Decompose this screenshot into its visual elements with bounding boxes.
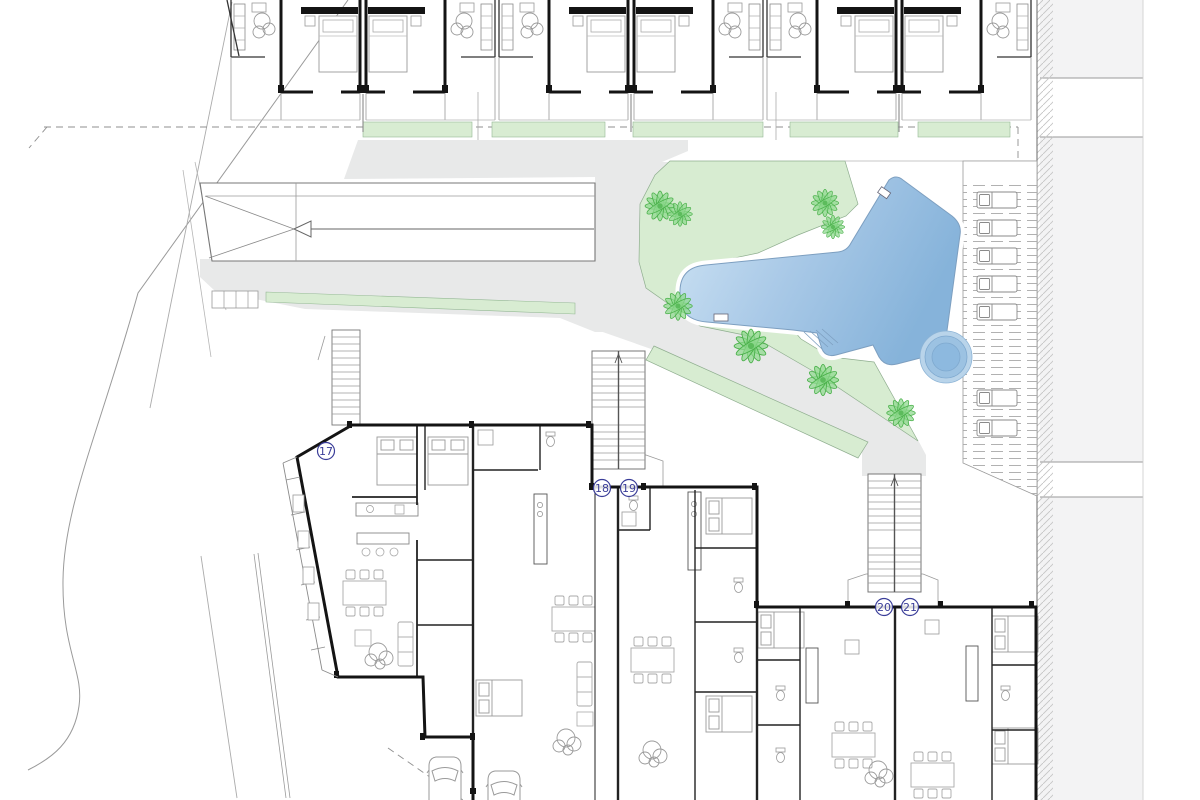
garage-ramp (200, 183, 595, 261)
unit-label-17: 17 (318, 443, 335, 460)
unit-label-17-text: 17 (319, 445, 333, 458)
stair-units-20-21 (868, 474, 921, 592)
unit-label-19: 19 (621, 480, 638, 497)
unit-label-20: 20 (876, 599, 893, 616)
unit-label-21-text: 21 (903, 601, 917, 614)
unit-label-19-text: 19 (622, 482, 636, 495)
unit-label-18: 18 (594, 480, 611, 497)
sun-deck (963, 161, 1037, 496)
floor-plan-canvas: 17 18 19 20 21 (0, 0, 1200, 800)
round-spa (920, 331, 972, 383)
pool-bench-icon (714, 314, 728, 321)
parking-spaces (212, 291, 258, 308)
unit-label-21: 21 (902, 599, 919, 616)
boundary-hatch-strip (1037, 0, 1053, 800)
unit-label-20-text: 20 (877, 601, 891, 614)
unit-label-18-text: 18 (595, 482, 609, 495)
stair-units-18-19 (592, 351, 645, 469)
floor-plan-page: 17 18 19 20 21 (0, 0, 1200, 800)
sun-loungers (977, 192, 1017, 436)
